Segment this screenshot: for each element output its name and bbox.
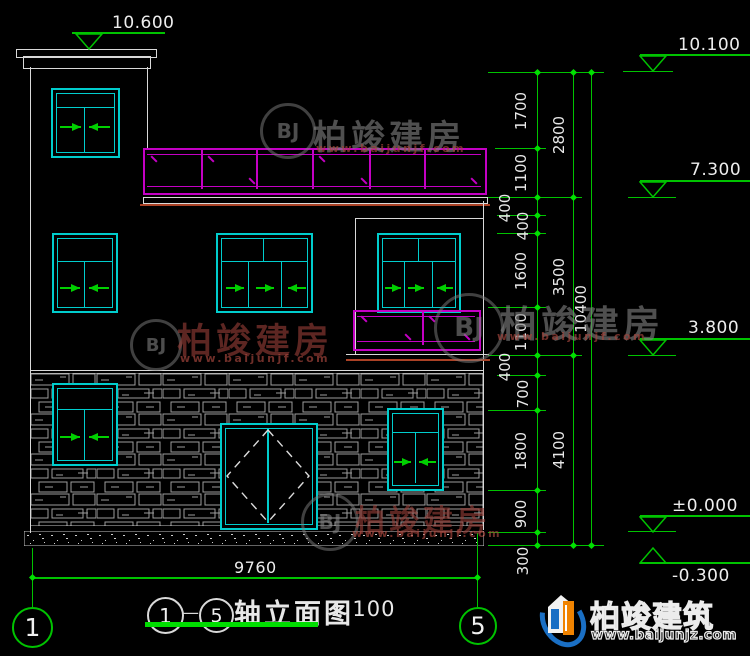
- window-mullion: [432, 262, 433, 307]
- terrace-slab: [143, 197, 488, 204]
- opening-arrow-icon: [437, 287, 453, 289]
- dim-label: 3500: [550, 251, 568, 303]
- level-tick-line: [628, 531, 676, 532]
- window-transom: [382, 261, 456, 262]
- axis-number: 5: [470, 612, 485, 640]
- level-triangle-icon: [75, 33, 103, 51]
- dim-tick: [534, 212, 541, 219]
- watermark-monogram: BJ: [146, 335, 166, 356]
- watermark-monogram-icon: BJ: [130, 319, 182, 371]
- railing-post: [256, 150, 258, 189]
- window-mullion: [84, 262, 85, 307]
- dim-tick: [570, 542, 577, 549]
- dim-label-total: 10400: [572, 283, 590, 335]
- railing-post: [422, 312, 424, 345]
- dim-tick: [588, 69, 595, 76]
- tower-window-mullion: [84, 108, 85, 152]
- level-label: 3.800: [688, 318, 739, 338]
- tower-window-transom: [56, 107, 115, 108]
- opening-arrow-icon: [60, 126, 81, 128]
- tower-cap-band: [23, 56, 151, 69]
- window-mullion: [248, 262, 249, 307]
- axis-bubble-5: 5: [459, 607, 497, 645]
- tower-window-inner-frame: [56, 93, 115, 153]
- dim-label: 400: [496, 182, 514, 234]
- window-mullion: [84, 410, 85, 460]
- dim-ext-line: [488, 72, 604, 73]
- level-label: -0.300: [672, 566, 730, 586]
- dim-label: 1100: [512, 147, 530, 199]
- wall-right-line: [483, 201, 484, 530]
- railing-post: [312, 150, 314, 189]
- dim-label: 300: [514, 535, 532, 587]
- dim-label: 400: [496, 341, 514, 393]
- level-line: [640, 562, 750, 564]
- plinth-hatch: [24, 531, 484, 546]
- door-swing-dashes: [225, 428, 311, 524]
- title-axis-bubble-start: 1: [147, 597, 184, 634]
- window-top-divider: [263, 238, 264, 261]
- dim-tick: [588, 542, 595, 549]
- dim-line-bottom: [32, 577, 478, 579]
- level-label: 10.600: [112, 13, 174, 33]
- dim-tick: [534, 69, 541, 76]
- bay-recess-top-line: [355, 218, 483, 219]
- dim-tick: [534, 230, 541, 237]
- level-label: 10.100: [678, 35, 740, 55]
- dim-tick: [534, 372, 541, 379]
- dim-tick: [534, 529, 541, 536]
- window-mullion: [281, 262, 282, 307]
- dim-label: 1700: [512, 85, 530, 137]
- opening-arrow-icon: [419, 461, 436, 463]
- opening-arrow-icon: [408, 287, 424, 289]
- dim-chain-line-total: [591, 72, 592, 545]
- dim-tick: [534, 407, 541, 414]
- window-inner-frame: [382, 238, 456, 308]
- dim-tick: [29, 574, 36, 581]
- dim-tick: [534, 487, 541, 494]
- level-tick-line: [623, 71, 673, 72]
- dim-tick: [570, 194, 577, 201]
- elevation-drawing-canvas: 1700 1100 400 400 1600 1100 400 700 1800…: [0, 0, 750, 656]
- dim-label: 1800: [512, 425, 530, 477]
- window-top-divider: [418, 238, 419, 261]
- opening-arrow-icon: [89, 287, 109, 289]
- opening-arrow-icon: [256, 287, 274, 289]
- dim-label: 1100: [512, 306, 530, 358]
- level-label: 7.300: [690, 160, 741, 180]
- window-inner-frame: [221, 238, 308, 308]
- opening-arrow-icon: [385, 287, 401, 289]
- floor-band-line: [30, 370, 483, 371]
- dim-tick: [534, 145, 541, 152]
- axis-bubble-1: 1: [12, 607, 53, 648]
- dim-label: 700: [514, 368, 532, 420]
- window-transom: [221, 261, 308, 262]
- dim-tick: [534, 542, 541, 549]
- slab-drip-line: [140, 204, 490, 206]
- opening-arrow-icon: [89, 436, 109, 438]
- axis-number: 1: [25, 613, 41, 642]
- watermark-monogram: BJ: [277, 119, 300, 143]
- axis-ext-line: [477, 533, 478, 607]
- bay-sill-drip-line: [346, 359, 490, 361]
- watermark-text: 柏竣建房: [177, 313, 333, 364]
- opening-arrow-icon: [60, 436, 80, 438]
- dim-tick: [534, 352, 541, 359]
- dim-ext-line: [488, 545, 604, 546]
- railing-post: [369, 150, 371, 189]
- window-transom: [57, 261, 113, 262]
- opening-arrow-icon: [288, 287, 306, 289]
- dim-label: 1600: [512, 245, 530, 297]
- railing-bottom-rail: [357, 341, 475, 342]
- opening-arrow-icon: [394, 461, 411, 463]
- drawing-scale: 1:100: [330, 597, 396, 621]
- dim-label-bottom: 9760: [234, 558, 277, 577]
- dim-tick: [570, 352, 577, 359]
- window-transom: [57, 409, 113, 410]
- opening-arrow-icon: [89, 126, 110, 128]
- railing-top-rail: [147, 154, 481, 155]
- level-tick-line: [628, 197, 676, 198]
- bay-sill-line: [346, 354, 489, 355]
- brand-url: www.baijunjz.com: [591, 627, 737, 643]
- watermark-url: www.baijunjf.com: [180, 352, 330, 365]
- tower-wall-right-line: [147, 67, 148, 150]
- title-axis-bubble-end: 5: [199, 598, 234, 633]
- railing-post: [424, 150, 426, 189]
- dim-tick: [570, 69, 577, 76]
- opening-arrow-icon: [60, 287, 80, 289]
- level-label: ±0.000: [672, 496, 738, 516]
- level-tick-line: [628, 355, 676, 356]
- wall-left-line: [30, 67, 31, 533]
- railing-bottom-rail: [147, 186, 481, 187]
- dim-tick: [474, 574, 481, 581]
- opening-arrow-icon: [226, 287, 244, 289]
- railing-post: [201, 150, 203, 189]
- dim-label: 900: [512, 488, 530, 540]
- railing-top-rail: [357, 316, 475, 317]
- window-inner-frame: [57, 388, 113, 461]
- dim-tick: [534, 194, 541, 201]
- brand-logo-icon: [539, 585, 587, 649]
- window-mullion: [404, 262, 405, 307]
- dim-label: 2800: [550, 109, 568, 161]
- window-inner-frame: [57, 238, 113, 308]
- window-mullion: [415, 433, 416, 483]
- dim-label: 4100: [550, 424, 568, 476]
- dim-tick: [534, 304, 541, 311]
- terrace-railing: [143, 148, 487, 195]
- title-underline: [145, 622, 318, 627]
